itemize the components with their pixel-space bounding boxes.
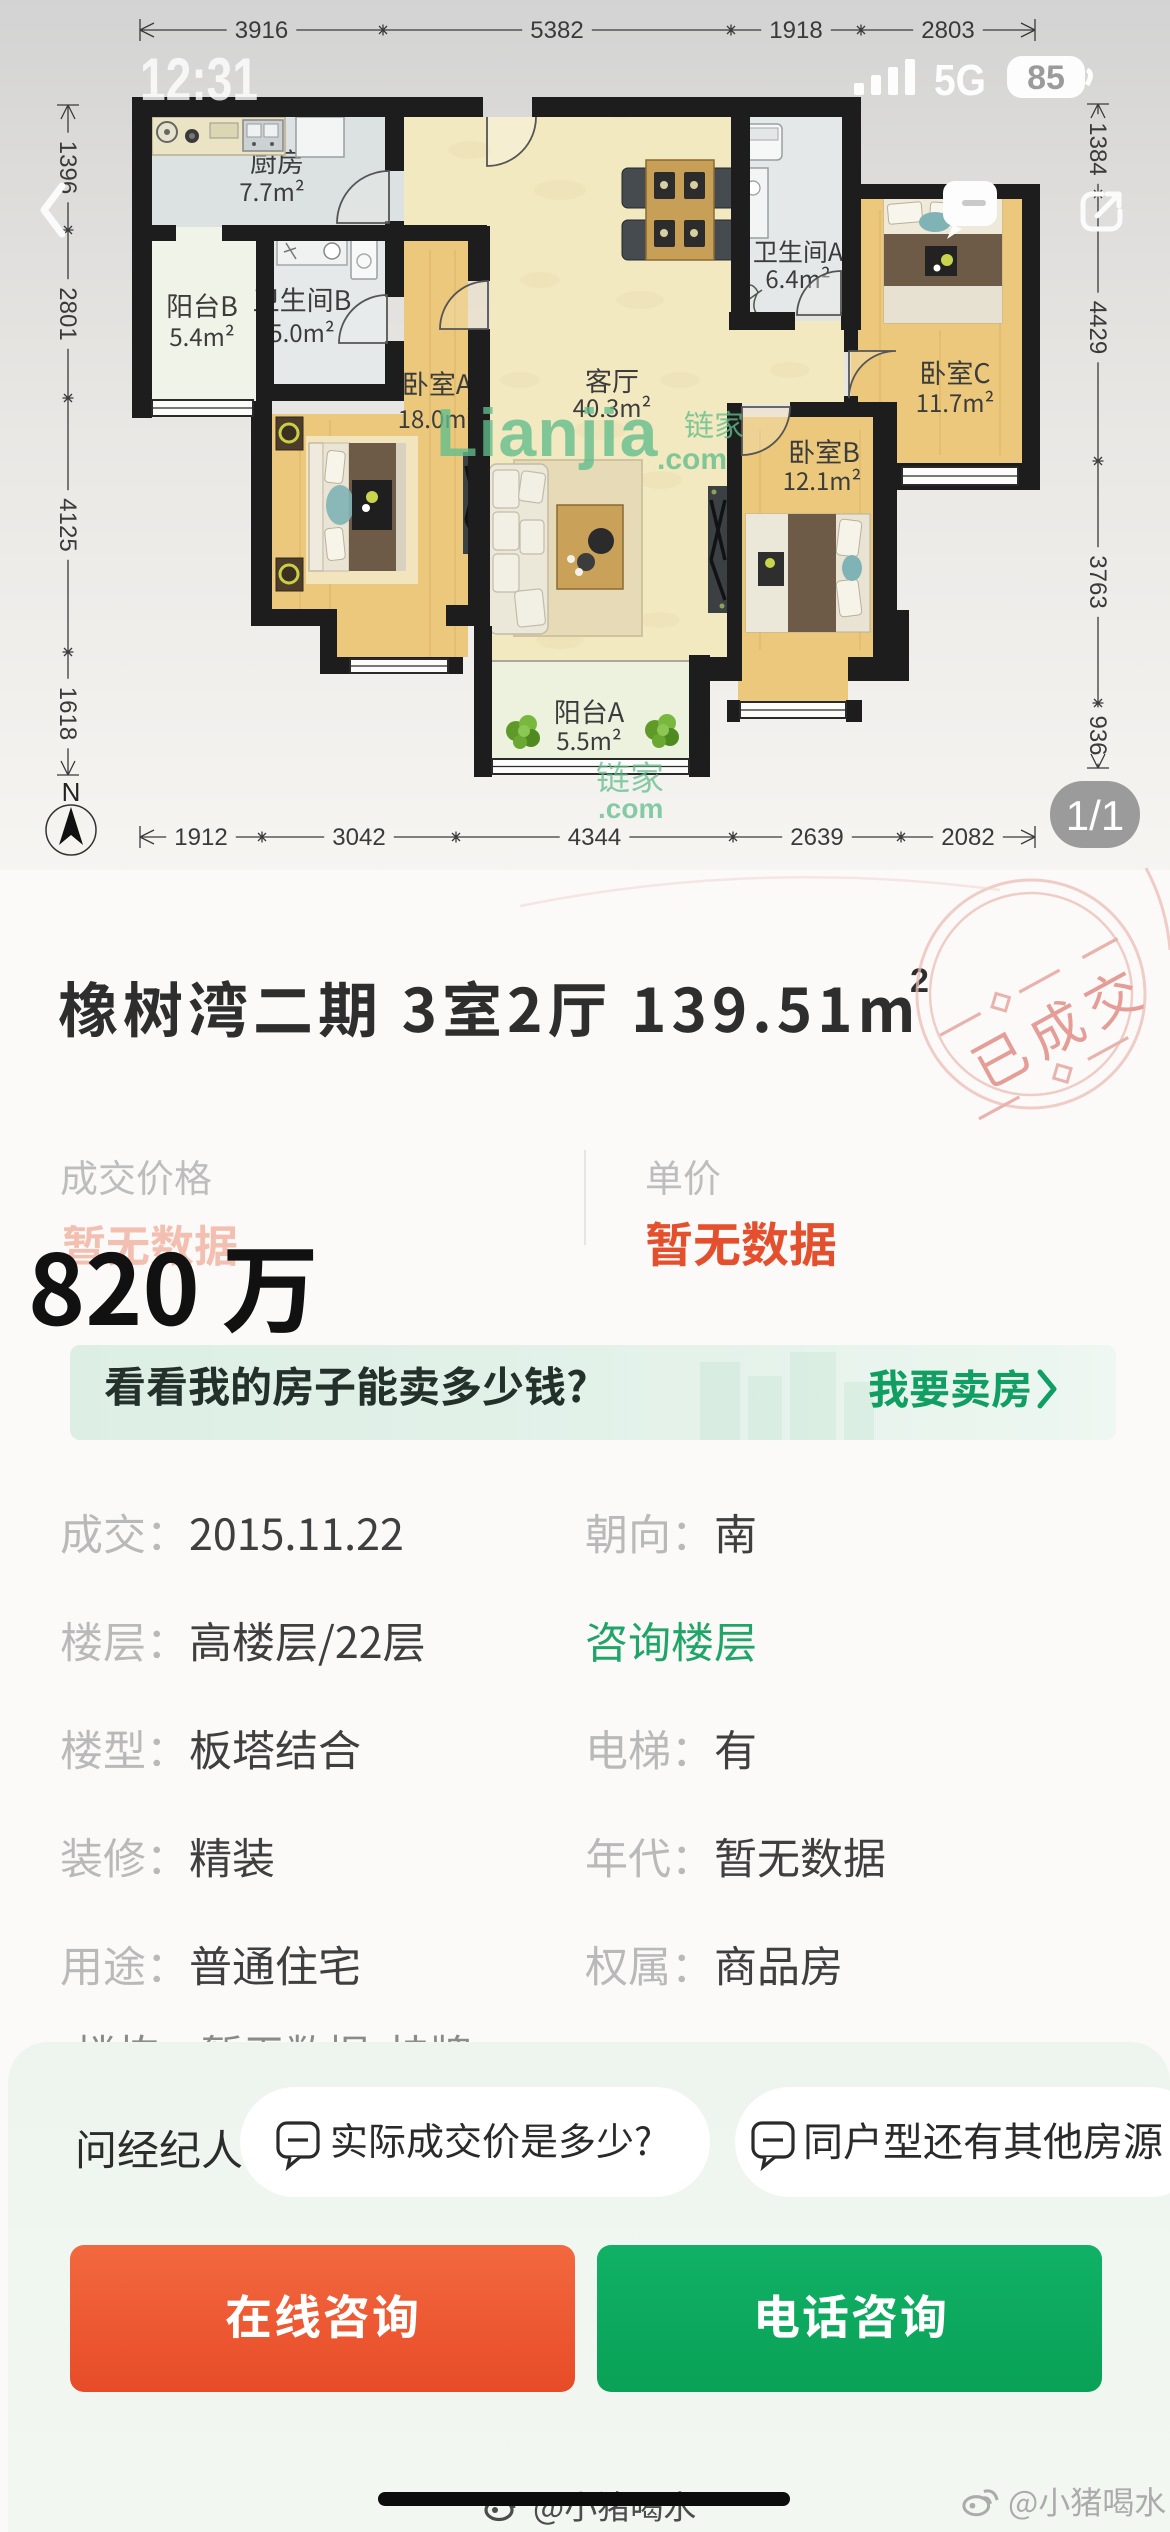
svg-text:.com: .com — [598, 793, 663, 824]
svg-text:3042: 3042 — [332, 824, 385, 851]
svg-text:1618: 1618 — [54, 687, 81, 740]
svg-text:936: 936 — [1084, 715, 1111, 755]
svg-text:1384: 1384 — [1084, 122, 1111, 175]
svg-text:2801: 2801 — [54, 287, 81, 340]
svg-text:85: 85 — [1027, 59, 1065, 97]
svg-text:5G: 5G — [934, 56, 986, 105]
svg-text:3763: 3763 — [1084, 555, 1111, 608]
svg-text:12:31: 12:31 — [140, 46, 258, 113]
svg-text:.com: .com — [657, 443, 727, 476]
svg-text:N: N — [62, 777, 81, 807]
svg-text:3916: 3916 — [235, 17, 288, 44]
svg-text:4125: 4125 — [54, 498, 81, 551]
svg-text:5382: 5382 — [530, 17, 583, 44]
svg-text:4344: 4344 — [568, 824, 621, 851]
svg-text:2082: 2082 — [941, 824, 994, 851]
svg-text:1918: 1918 — [769, 17, 822, 44]
svg-text:4429: 4429 — [1084, 301, 1111, 354]
svg-text:2803: 2803 — [921, 17, 974, 44]
svg-text:Lianjia: Lianjia — [436, 395, 659, 471]
svg-text:1/1: 1/1 — [1066, 792, 1124, 839]
svg-text:1912: 1912 — [174, 824, 227, 851]
svg-text:2639: 2639 — [790, 824, 843, 851]
